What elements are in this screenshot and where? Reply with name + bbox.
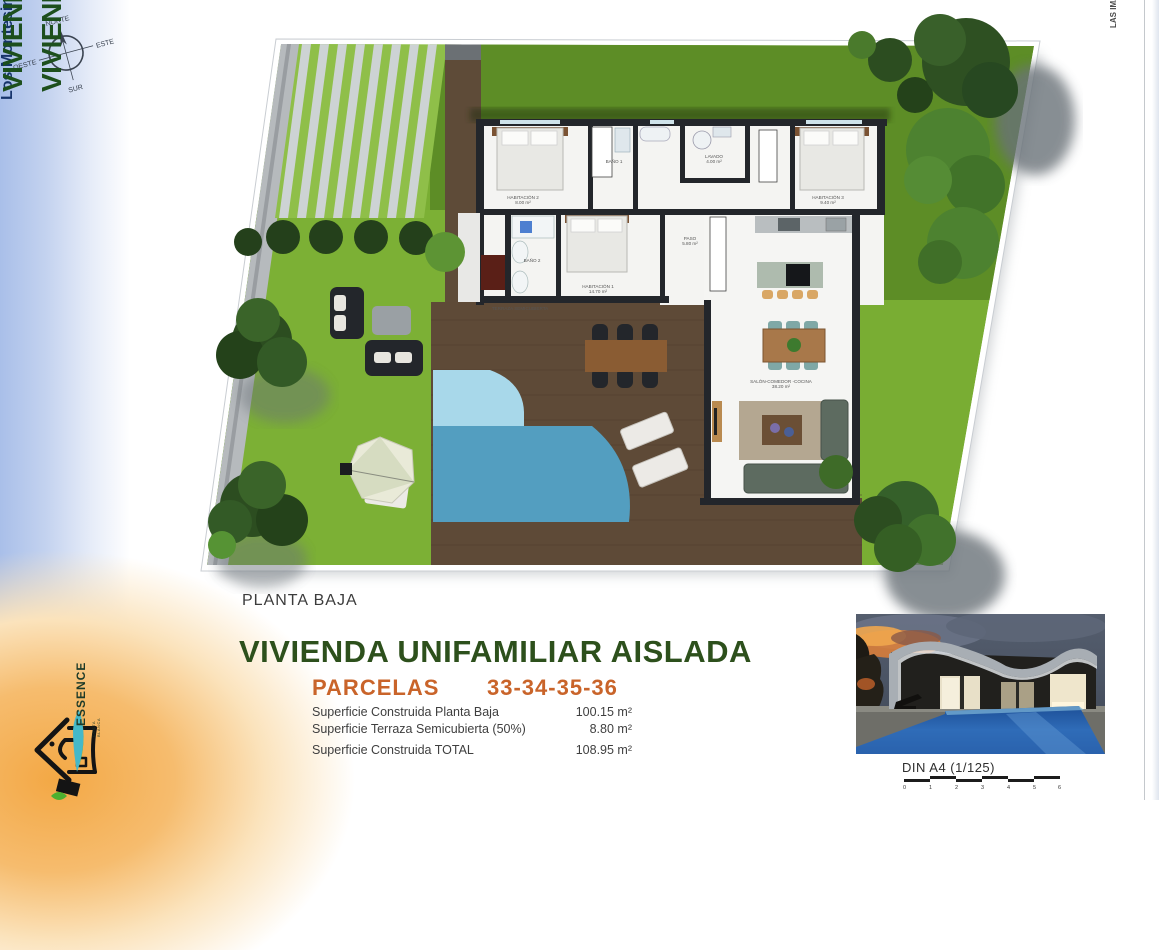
svg-text:9.40 m²: 9.40 m² xyxy=(820,200,836,205)
svg-text:2: 2 xyxy=(955,785,958,791)
svg-text:14.70 m²: 14.70 m² xyxy=(589,289,608,294)
svg-text:4.00 m²: 4.00 m² xyxy=(706,159,722,164)
svg-text:6: 6 xyxy=(1058,785,1061,791)
svg-text:8.00 m²: 8.00 m² xyxy=(515,200,531,205)
svg-text:38.20 m²: 38.20 m² xyxy=(772,384,791,389)
svg-text:1: 1 xyxy=(929,785,932,791)
svg-text:TERRAZA SEMICUBIERTA: TERRAZA SEMICUBIERTA xyxy=(492,306,549,311)
svg-text:BAÑO 1: BAÑO 1 xyxy=(606,158,623,164)
svg-text:5.80 m²: 5.80 m² xyxy=(682,241,698,246)
svg-text:BAÑO 2: BAÑO 2 xyxy=(524,257,541,263)
svg-text:4: 4 xyxy=(1007,785,1010,791)
svg-text:5: 5 xyxy=(1033,785,1036,791)
svg-text:3: 3 xyxy=(981,785,984,791)
svg-text:0: 0 xyxy=(903,785,906,791)
